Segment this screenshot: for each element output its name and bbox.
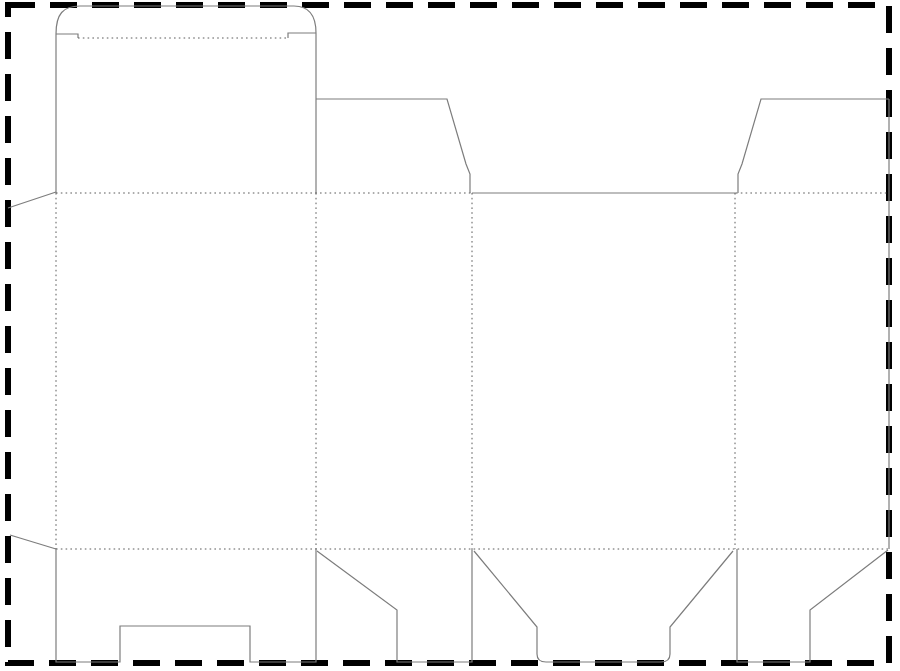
glue-flap-bottom-cut <box>10 535 56 549</box>
bottom-flap-trapezoid-cut <box>474 551 733 662</box>
dust-flap-right-cut <box>738 99 889 193</box>
dieline-stage <box>0 0 900 671</box>
tuck-flap-right-shoulder-cut <box>288 33 316 38</box>
dust-flap-left-cut <box>316 99 470 193</box>
bottom-flap-notched-cut <box>56 549 316 662</box>
tuck-flap-outline-cut <box>56 6 316 34</box>
bottom-flap-angled-left-cut <box>317 549 472 662</box>
dieline-svg <box>0 0 900 671</box>
glue-flap-top-cut <box>8 192 56 208</box>
bottom-flap-angled-right-cut <box>737 549 888 662</box>
tuck-flap-left-shoulder-cut <box>56 34 78 38</box>
